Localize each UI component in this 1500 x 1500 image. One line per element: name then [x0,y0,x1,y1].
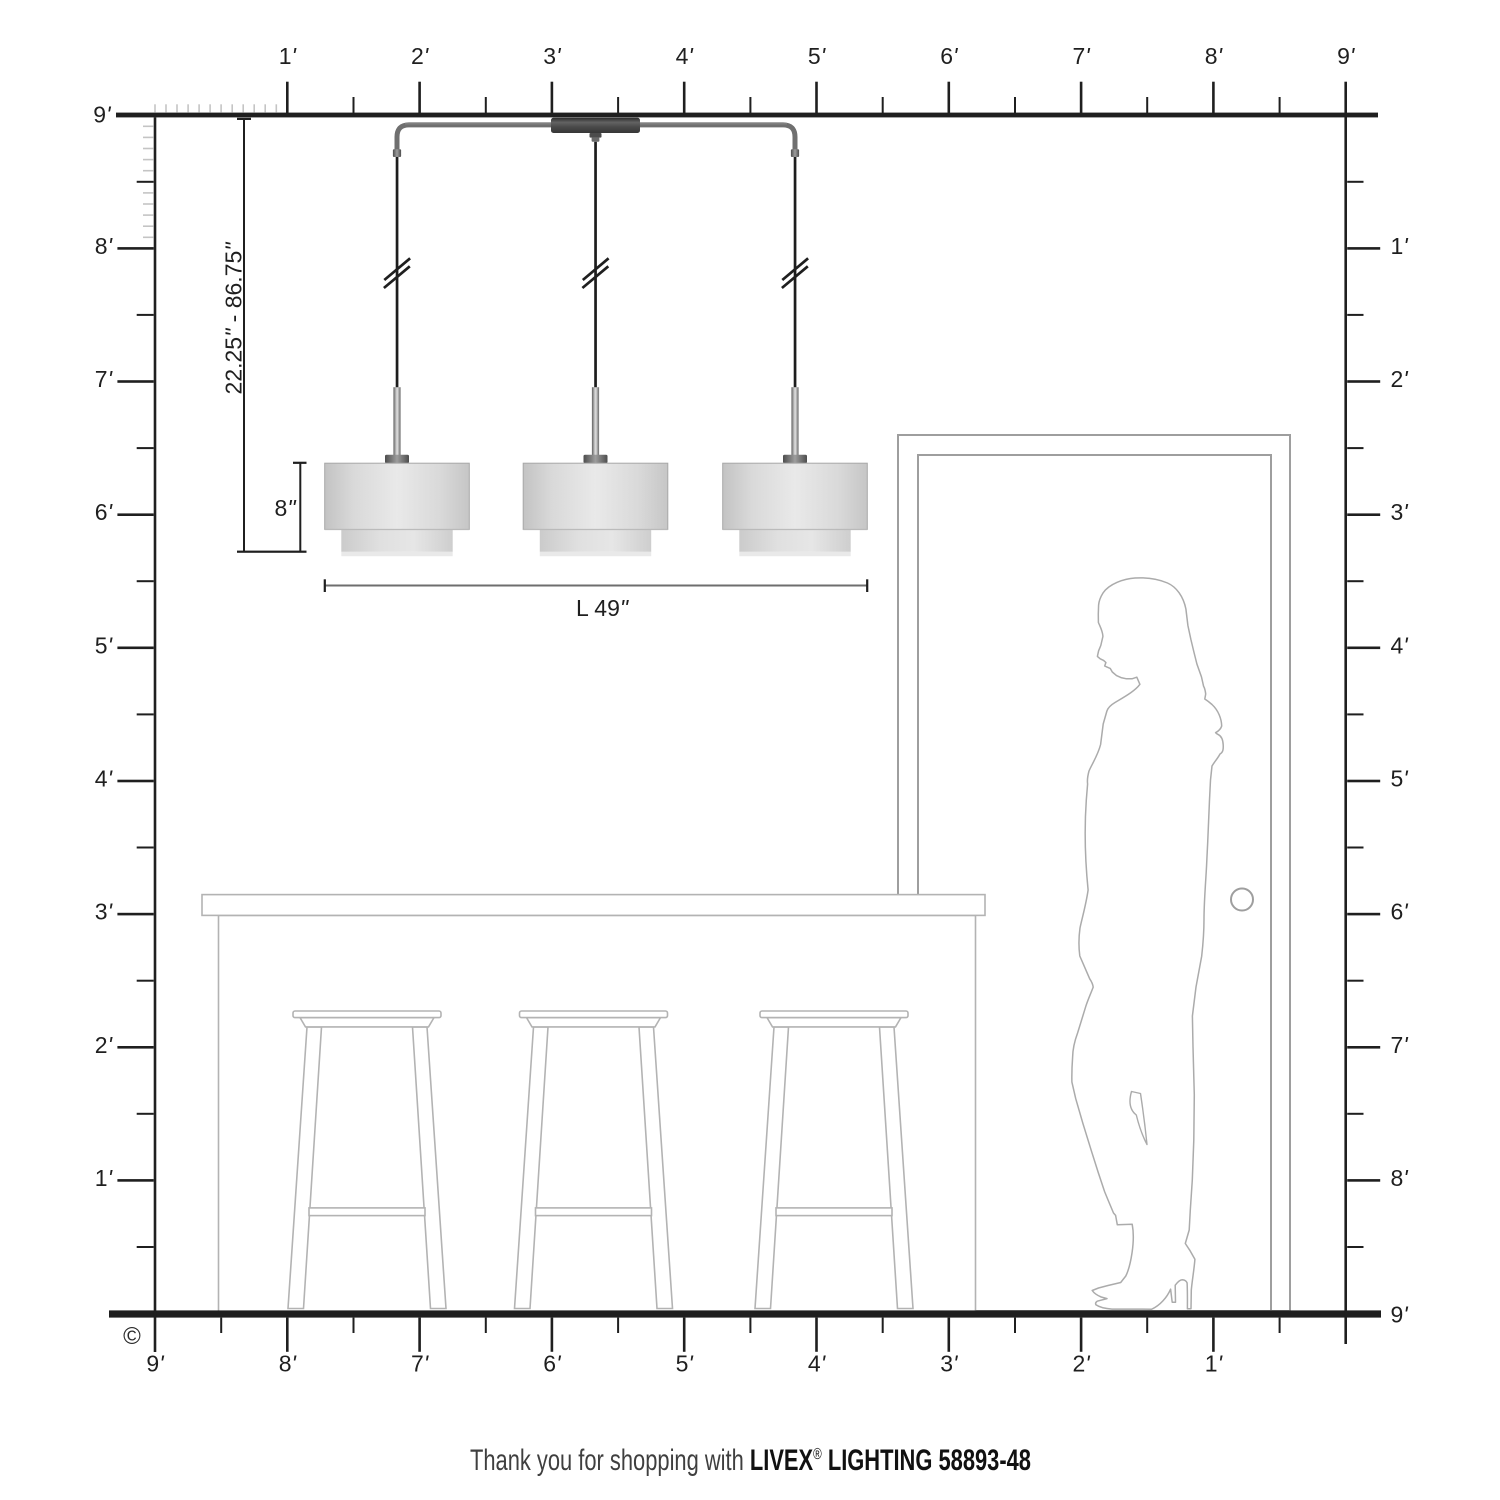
svg-text:5': 5' [808,43,827,69]
svg-text:4': 4' [808,1351,827,1377]
svg-text:5': 5' [676,1351,695,1377]
svg-text:2': 2' [1391,366,1410,392]
svg-text:3': 3' [940,1351,959,1377]
svg-text:9': 9' [93,102,112,128]
svg-text:L 49": L 49" [576,595,630,621]
svg-text:©: © [123,1323,141,1350]
svg-text:2': 2' [95,1032,114,1058]
svg-text:1': 1' [1205,1351,1224,1377]
svg-text:22.25" - 86.75": 22.25" - 86.75" [221,241,247,395]
svg-text:3': 3' [543,43,562,69]
svg-text:3': 3' [95,899,114,925]
svg-text:2': 2' [411,43,430,69]
svg-text:6': 6' [1391,899,1410,925]
svg-text:4': 4' [1391,632,1410,658]
svg-text:5': 5' [95,632,114,658]
svg-text:8': 8' [1205,43,1224,69]
svg-text:4': 4' [95,766,114,792]
svg-text:9': 9' [1391,1301,1410,1327]
svg-text:6': 6' [95,499,114,525]
svg-text:1': 1' [279,43,298,69]
svg-text:7': 7' [95,366,114,392]
svg-text:6': 6' [543,1351,562,1377]
svg-text:8": 8" [275,495,298,521]
svg-text:8': 8' [279,1351,298,1377]
svg-text:7': 7' [411,1351,430,1377]
svg-text:7': 7' [1391,1032,1410,1058]
svg-text:7': 7' [1072,43,1091,69]
svg-text:3': 3' [1391,499,1410,525]
svg-text:2': 2' [1072,1351,1091,1377]
svg-text:5': 5' [1391,766,1410,792]
svg-text:6': 6' [940,43,959,69]
svg-text:8': 8' [1391,1165,1410,1191]
svg-text:Thank you for shopping with LI: Thank you for shopping with LIVEX® LIGHT… [470,1443,1031,1477]
svg-text:1': 1' [95,1165,114,1191]
svg-text:1': 1' [1391,233,1410,259]
svg-text:9': 9' [146,1351,165,1377]
svg-text:8': 8' [95,233,114,259]
svg-text:9': 9' [1337,43,1356,69]
svg-text:4': 4' [676,43,695,69]
